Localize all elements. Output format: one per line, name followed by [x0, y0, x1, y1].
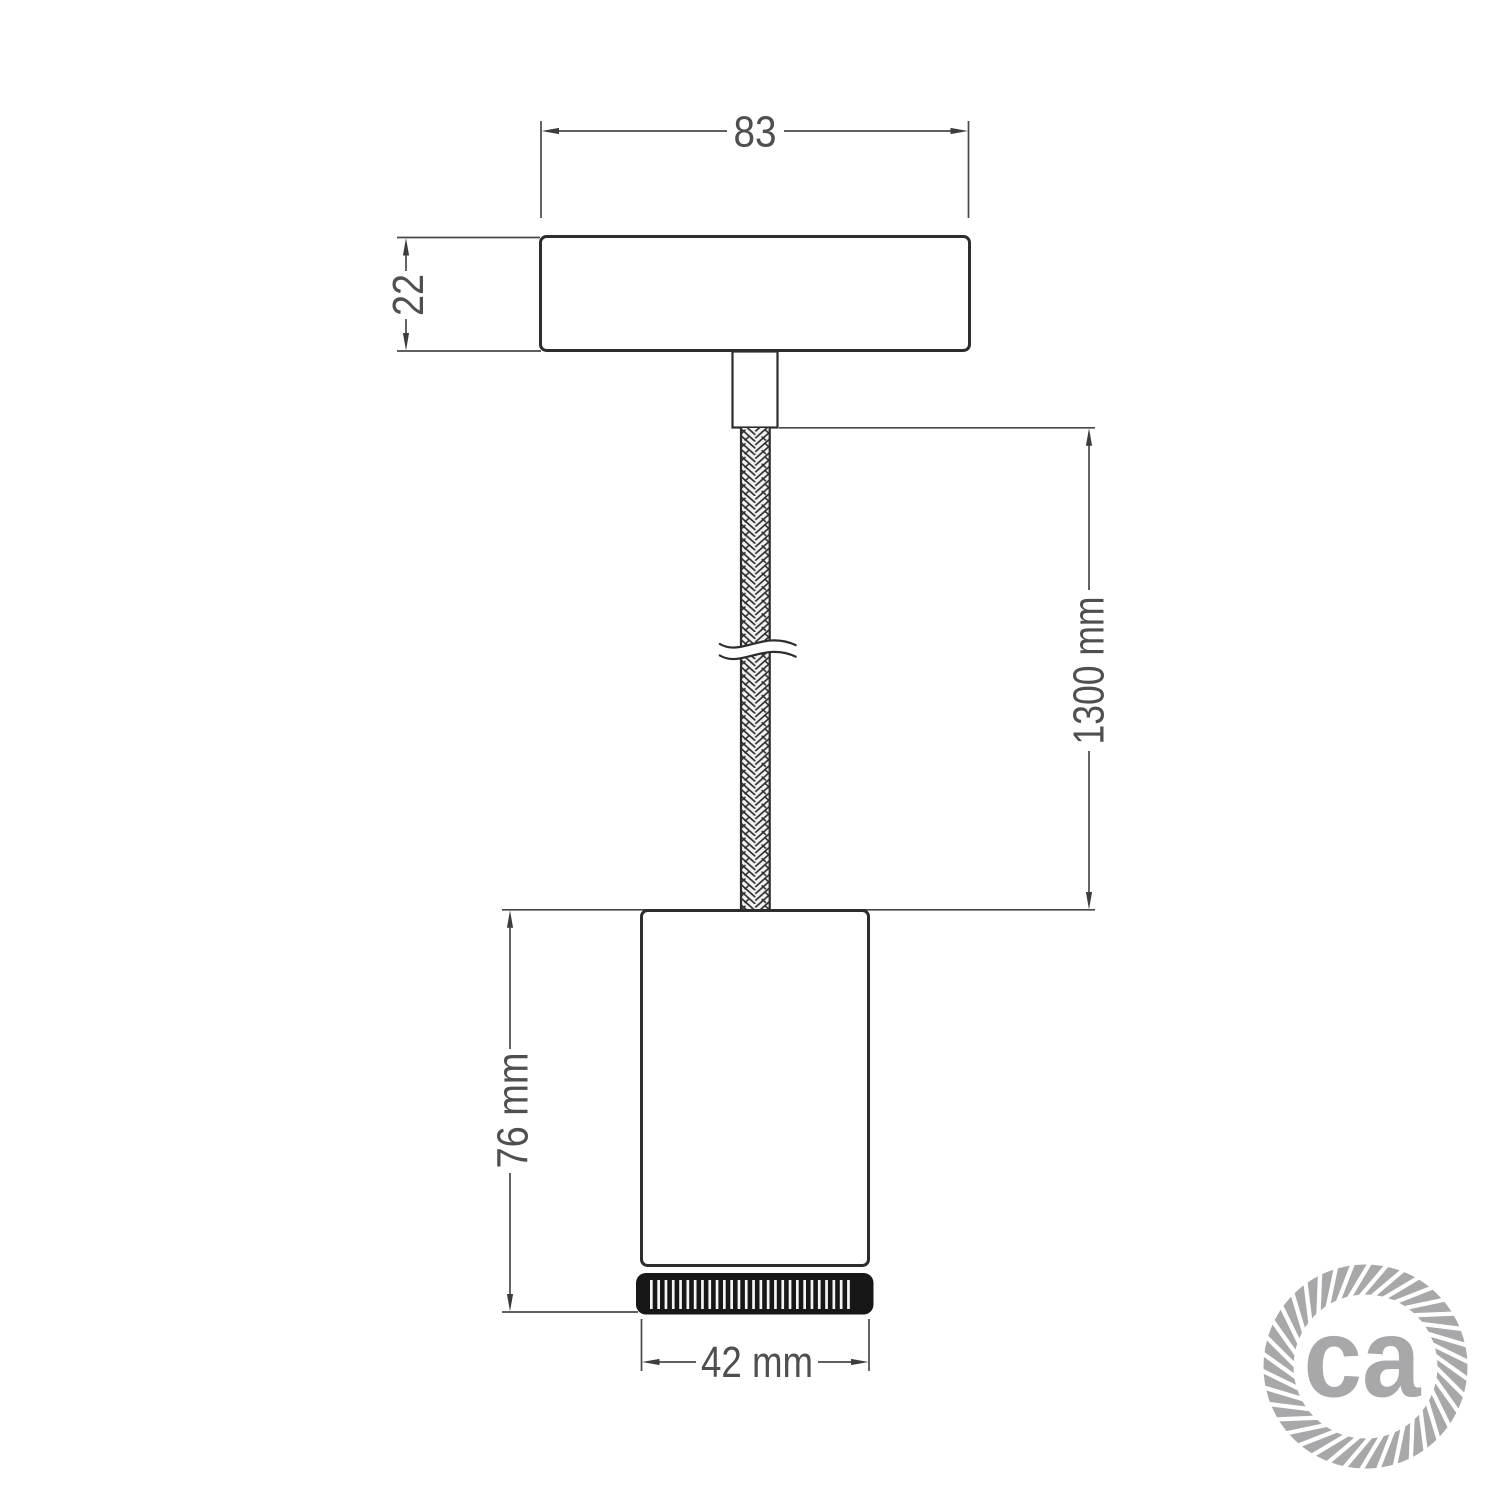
- svg-text:ca: ca: [1304, 1296, 1422, 1421]
- svg-text:22: 22: [384, 274, 433, 316]
- svg-text:1300 mm: 1300 mm: [1065, 597, 1114, 745]
- svg-text:83: 83: [734, 108, 777, 157]
- svg-text:42 mm: 42 mm: [701, 1338, 813, 1387]
- svg-text:76 mm: 76 mm: [489, 1053, 538, 1169]
